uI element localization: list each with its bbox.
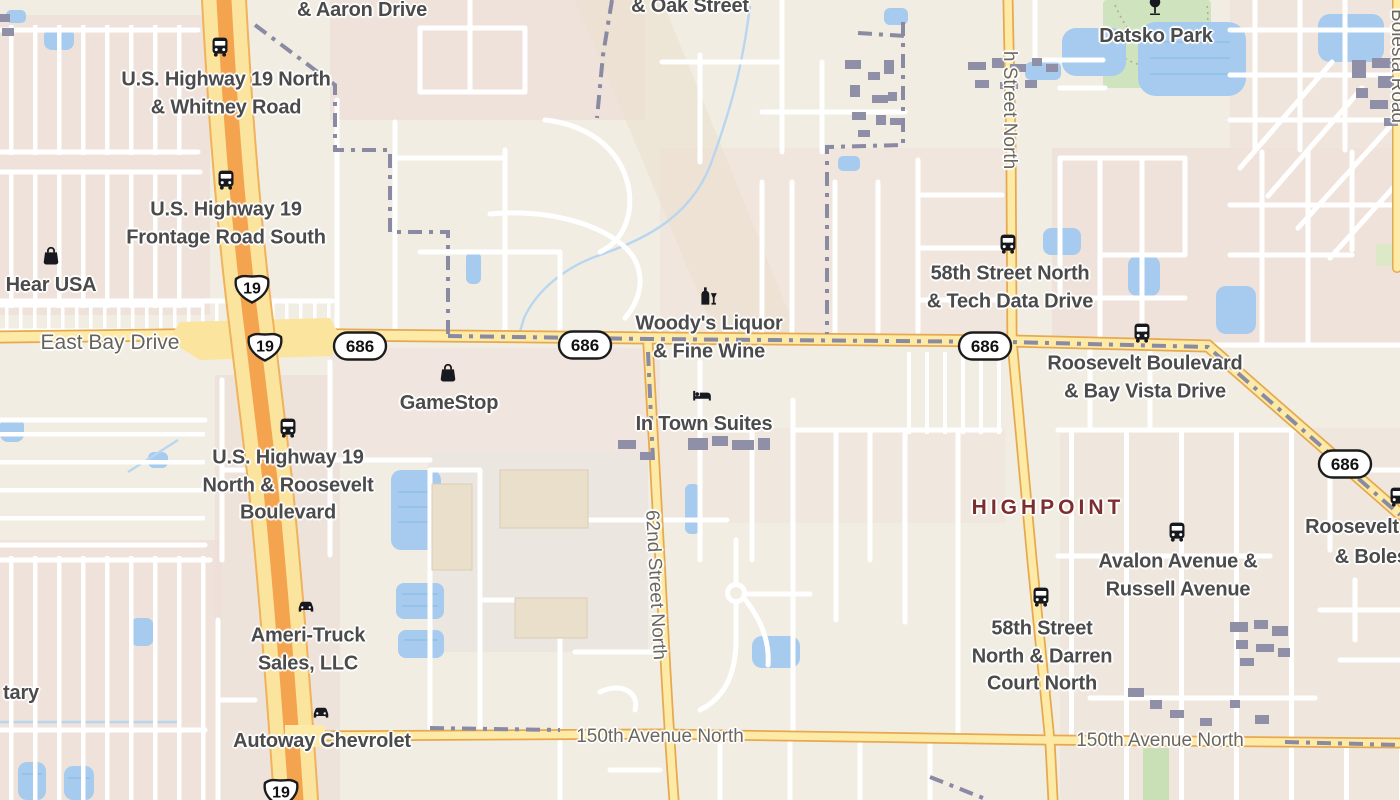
route-shield-686-c: 686: [959, 333, 1011, 360]
svg-text:19: 19: [256, 339, 274, 356]
svg-text:19: 19: [243, 281, 261, 298]
route-shield-686-d: 686: [1319, 451, 1371, 478]
route-shield-us19-c: 19: [265, 780, 298, 800]
svg-text:19: 19: [272, 785, 290, 800]
map-viewport[interactable]: 191919686686686686 & Aaron DriveU.S. Hig…: [0, 0, 1400, 800]
map-canvas[interactable]: 191919686686686686: [0, 0, 1400, 800]
svg-text:686: 686: [971, 337, 999, 356]
svg-text:686: 686: [571, 336, 599, 355]
route-shield-686-a: 686: [334, 333, 386, 360]
svg-text:686: 686: [1331, 455, 1359, 474]
route-shield-686-b: 686: [559, 332, 611, 359]
svg-text:686: 686: [346, 337, 374, 356]
